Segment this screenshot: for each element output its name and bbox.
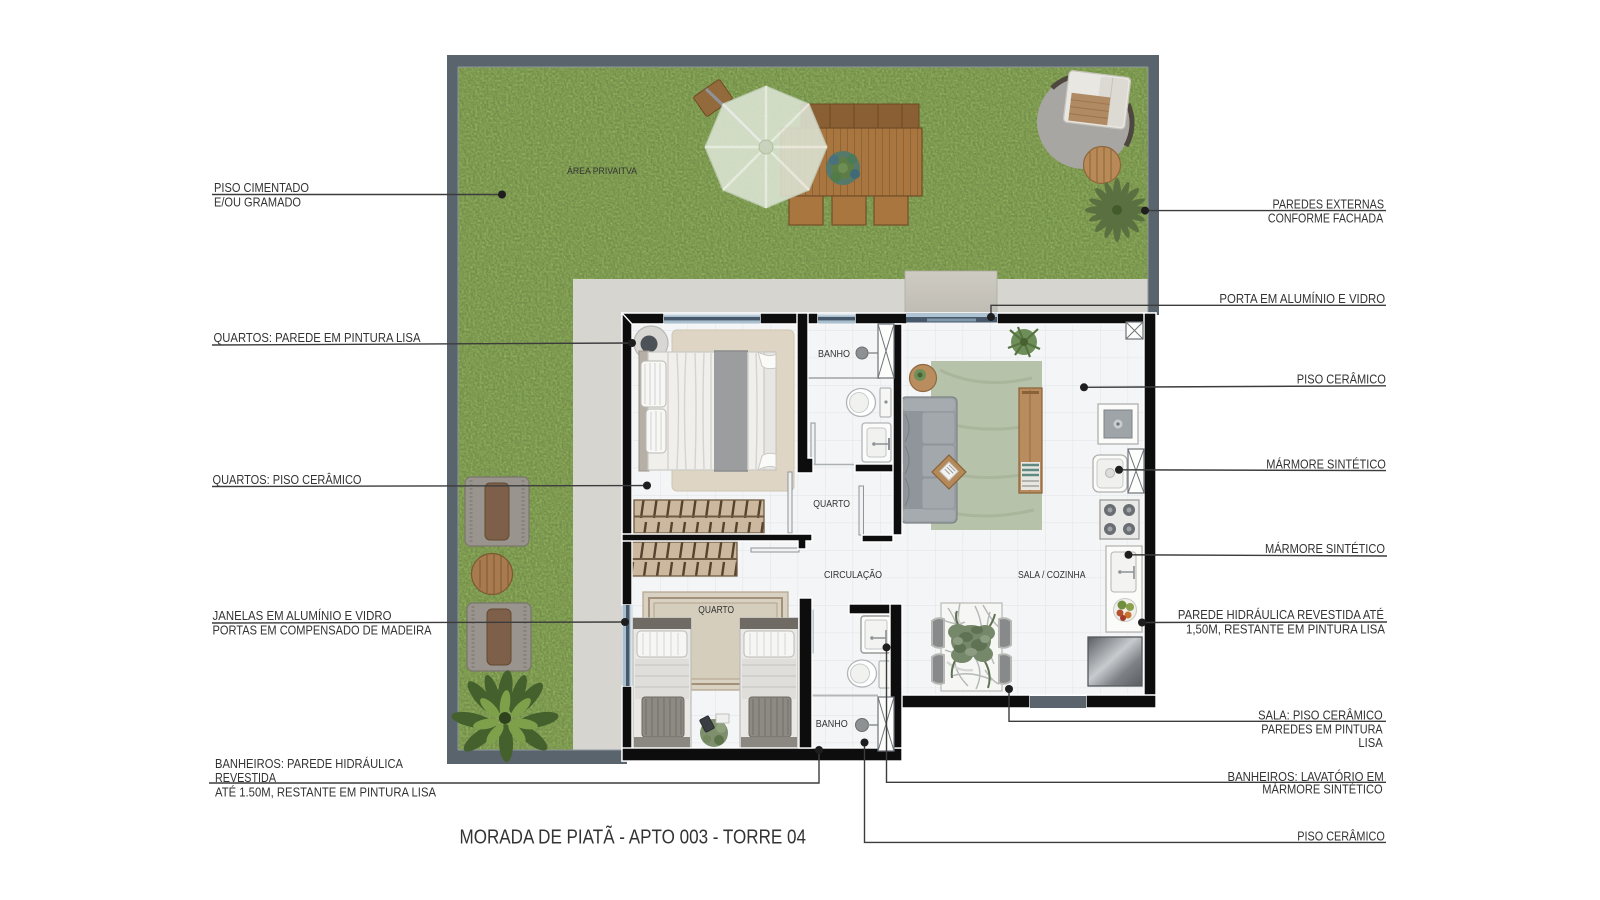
svg-text:PISO CERÂMICO: PISO CERÂMICO — [1297, 828, 1385, 843]
svg-text:BANHEIROS: PAREDE HIDRÁULICA: BANHEIROS: PAREDE HIDRÁULICA — [215, 756, 404, 771]
svg-text:ATÉ 1.50M, RESTANTE EM PINTURA: ATÉ 1.50M, RESTANTE EM PINTURA LISA — [215, 785, 437, 800]
svg-text:QUARTOS: PISO CERÂMICO: QUARTOS: PISO CERÂMICO — [213, 472, 362, 487]
svg-text:PAREDES EXTERNAS: PAREDES EXTERNAS — [1273, 198, 1385, 212]
svg-text:QUARTO: QUARTO — [813, 499, 850, 510]
svg-text:MÁRMORE SINTÉTICO: MÁRMORE SINTÉTICO — [1262, 781, 1383, 796]
svg-text:QUARTOS: PAREDE EM PINTURA LIS: QUARTOS: PAREDE EM PINTURA LISA — [214, 331, 422, 345]
svg-text:PISO CIMENTADO: PISO CIMENTADO — [214, 181, 309, 195]
svg-text:PISO CERÂMICO: PISO CERÂMICO — [1297, 372, 1386, 387]
svg-text:BANHO: BANHO — [818, 349, 850, 360]
svg-text:1,50M, RESTANTE EM PINTURA LIS: 1,50M, RESTANTE EM PINTURA LISA — [1186, 623, 1386, 637]
svg-text:JANELAS EM ALUMÍNIO E VIDRO: JANELAS EM ALUMÍNIO E VIDRO — [213, 608, 392, 623]
svg-text:CIRCULAÇÃO: CIRCULAÇÃO — [824, 568, 882, 581]
svg-text:PORTAS EM COMPENSADO DE MADEIR: PORTAS EM COMPENSADO DE MADEIRA — [213, 624, 433, 638]
svg-text:MORADA DE PIATÃ - APTO 003 - T: MORADA DE PIATÃ - APTO 003 - TORRE 04 — [460, 825, 807, 849]
svg-text:MÁRMORE SINTÉTICO: MÁRMORE SINTÉTICO — [1266, 457, 1386, 472]
svg-text:REVESTIDA: REVESTIDA — [215, 771, 277, 785]
svg-text:SALA / COZINHA: SALA / COZINHA — [1018, 570, 1086, 581]
svg-text:QUARTO: QUARTO — [698, 605, 734, 616]
svg-text:PAREDES EM PINTURA: PAREDES EM PINTURA — [1261, 722, 1383, 736]
svg-text:MÁRMORE SINTÉTICO: MÁRMORE SINTÉTICO — [1265, 541, 1385, 556]
svg-text:E/OU GRAMADO: E/OU GRAMADO — [214, 196, 301, 210]
svg-text:CONFORME FACHADA: CONFORME FACHADA — [1268, 212, 1384, 226]
svg-text:PAREDE HIDRÁULICA REVESTIDA AT: PAREDE HIDRÁULICA REVESTIDA ATÉ — [1178, 607, 1384, 622]
svg-text:BANHO: BANHO — [816, 719, 848, 730]
svg-text:LISA: LISA — [1358, 736, 1383, 750]
svg-text:ÁREA PRIVAITVA: ÁREA PRIVAITVA — [567, 166, 638, 177]
svg-text:PORTA EM ALUMÍNIO E VIDRO: PORTA EM ALUMÍNIO E VIDRO — [1219, 291, 1385, 306]
svg-text:SALA: PISO CERÂMICO: SALA: PISO CERÂMICO — [1258, 708, 1383, 723]
